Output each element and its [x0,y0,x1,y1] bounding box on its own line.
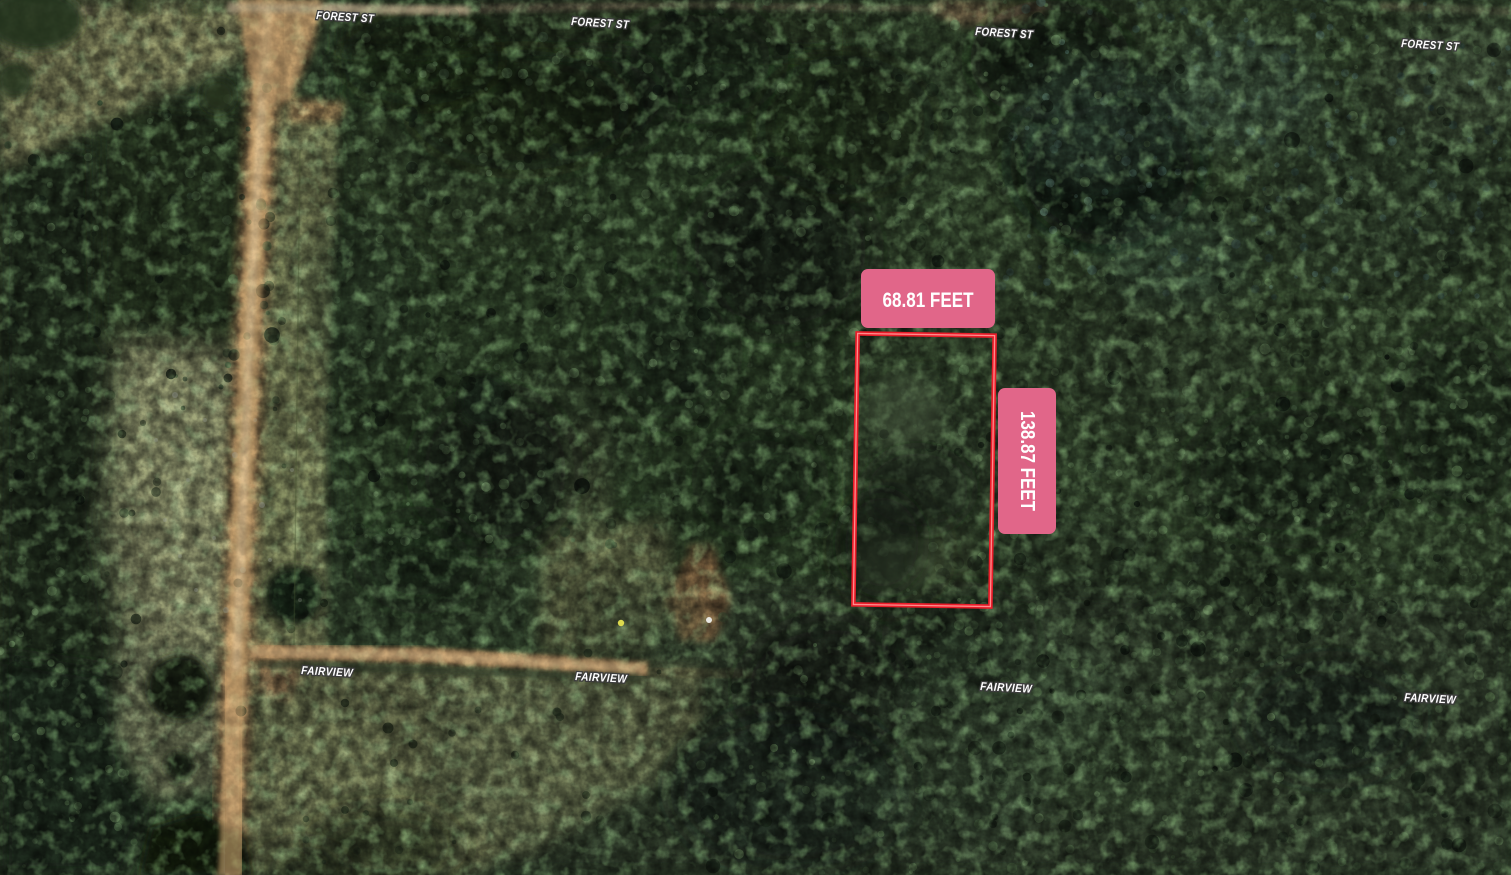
svg-text:138.87 FEET: 138.87 FEET [1016,411,1038,511]
svg-text:68.81 FEET: 68.81 FEET [883,289,974,312]
